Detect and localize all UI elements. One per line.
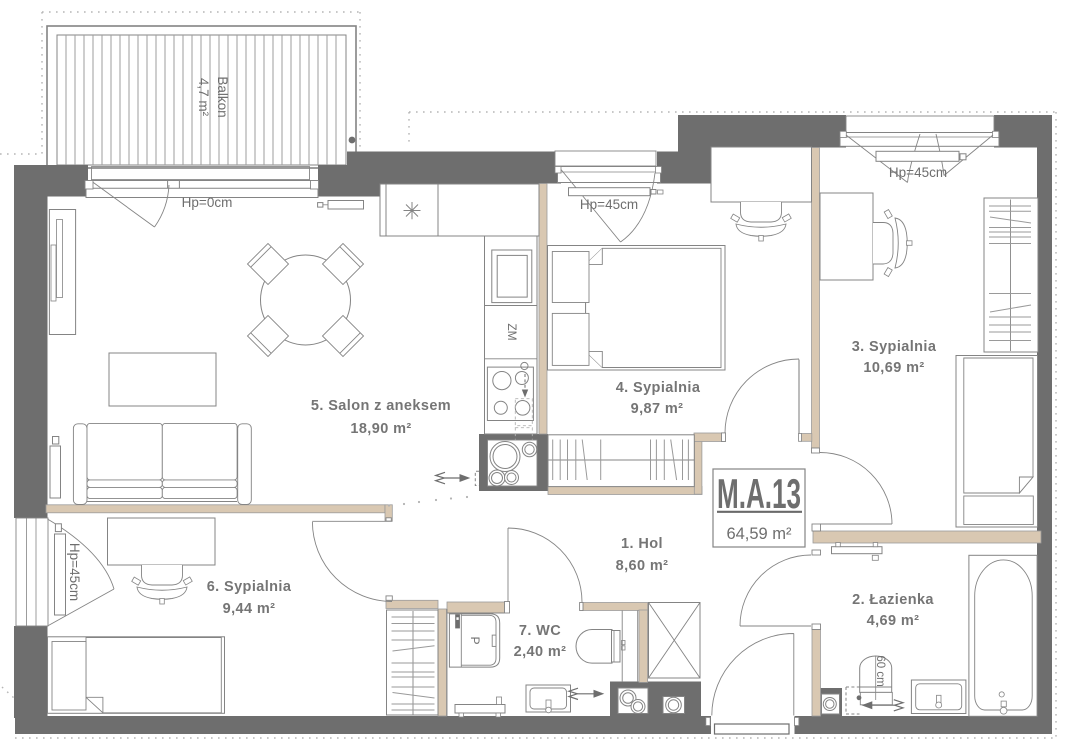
svg-text:1. Hol: 1. Hol: [621, 536, 663, 552]
svg-text:P: P: [468, 636, 482, 644]
svg-text:4,69 m²: 4,69 m²: [867, 613, 920, 629]
svg-text:7. WC: 7. WC: [519, 623, 561, 639]
svg-text:4. Sypialnia: 4. Sypialnia: [616, 380, 701, 396]
svg-text:M.A.13: M.A.13: [717, 470, 801, 517]
svg-text:ZM: ZM: [505, 323, 519, 340]
svg-text:10,69 m²: 10,69 m²: [863, 360, 924, 376]
svg-text:60 cm: 60 cm: [874, 655, 886, 686]
svg-text:6. Sypialnia: 6. Sypialnia: [207, 579, 292, 595]
svg-text:9,44 m²: 9,44 m²: [223, 601, 276, 617]
svg-text:Hp=0cm: Hp=0cm: [182, 195, 233, 210]
svg-text:2,40 m²: 2,40 m²: [514, 644, 567, 660]
svg-text:2. Łazienka: 2. Łazienka: [852, 592, 934, 608]
svg-text:5. Salon z aneksem: 5. Salon z aneksem: [311, 398, 451, 414]
svg-text:8,60 m²: 8,60 m²: [616, 558, 669, 574]
svg-text:9,87 m²: 9,87 m²: [631, 401, 684, 417]
svg-text:Hp=45cm: Hp=45cm: [580, 197, 638, 212]
svg-text:Hp=45cm: Hp=45cm: [67, 543, 82, 601]
svg-text:3. Sypialnia: 3. Sypialnia: [852, 339, 937, 355]
svg-text:18,90 m²: 18,90 m²: [350, 421, 411, 437]
svg-text:Hp=45cm: Hp=45cm: [889, 165, 947, 180]
svg-text:64,59 m²: 64,59 m²: [726, 525, 792, 543]
